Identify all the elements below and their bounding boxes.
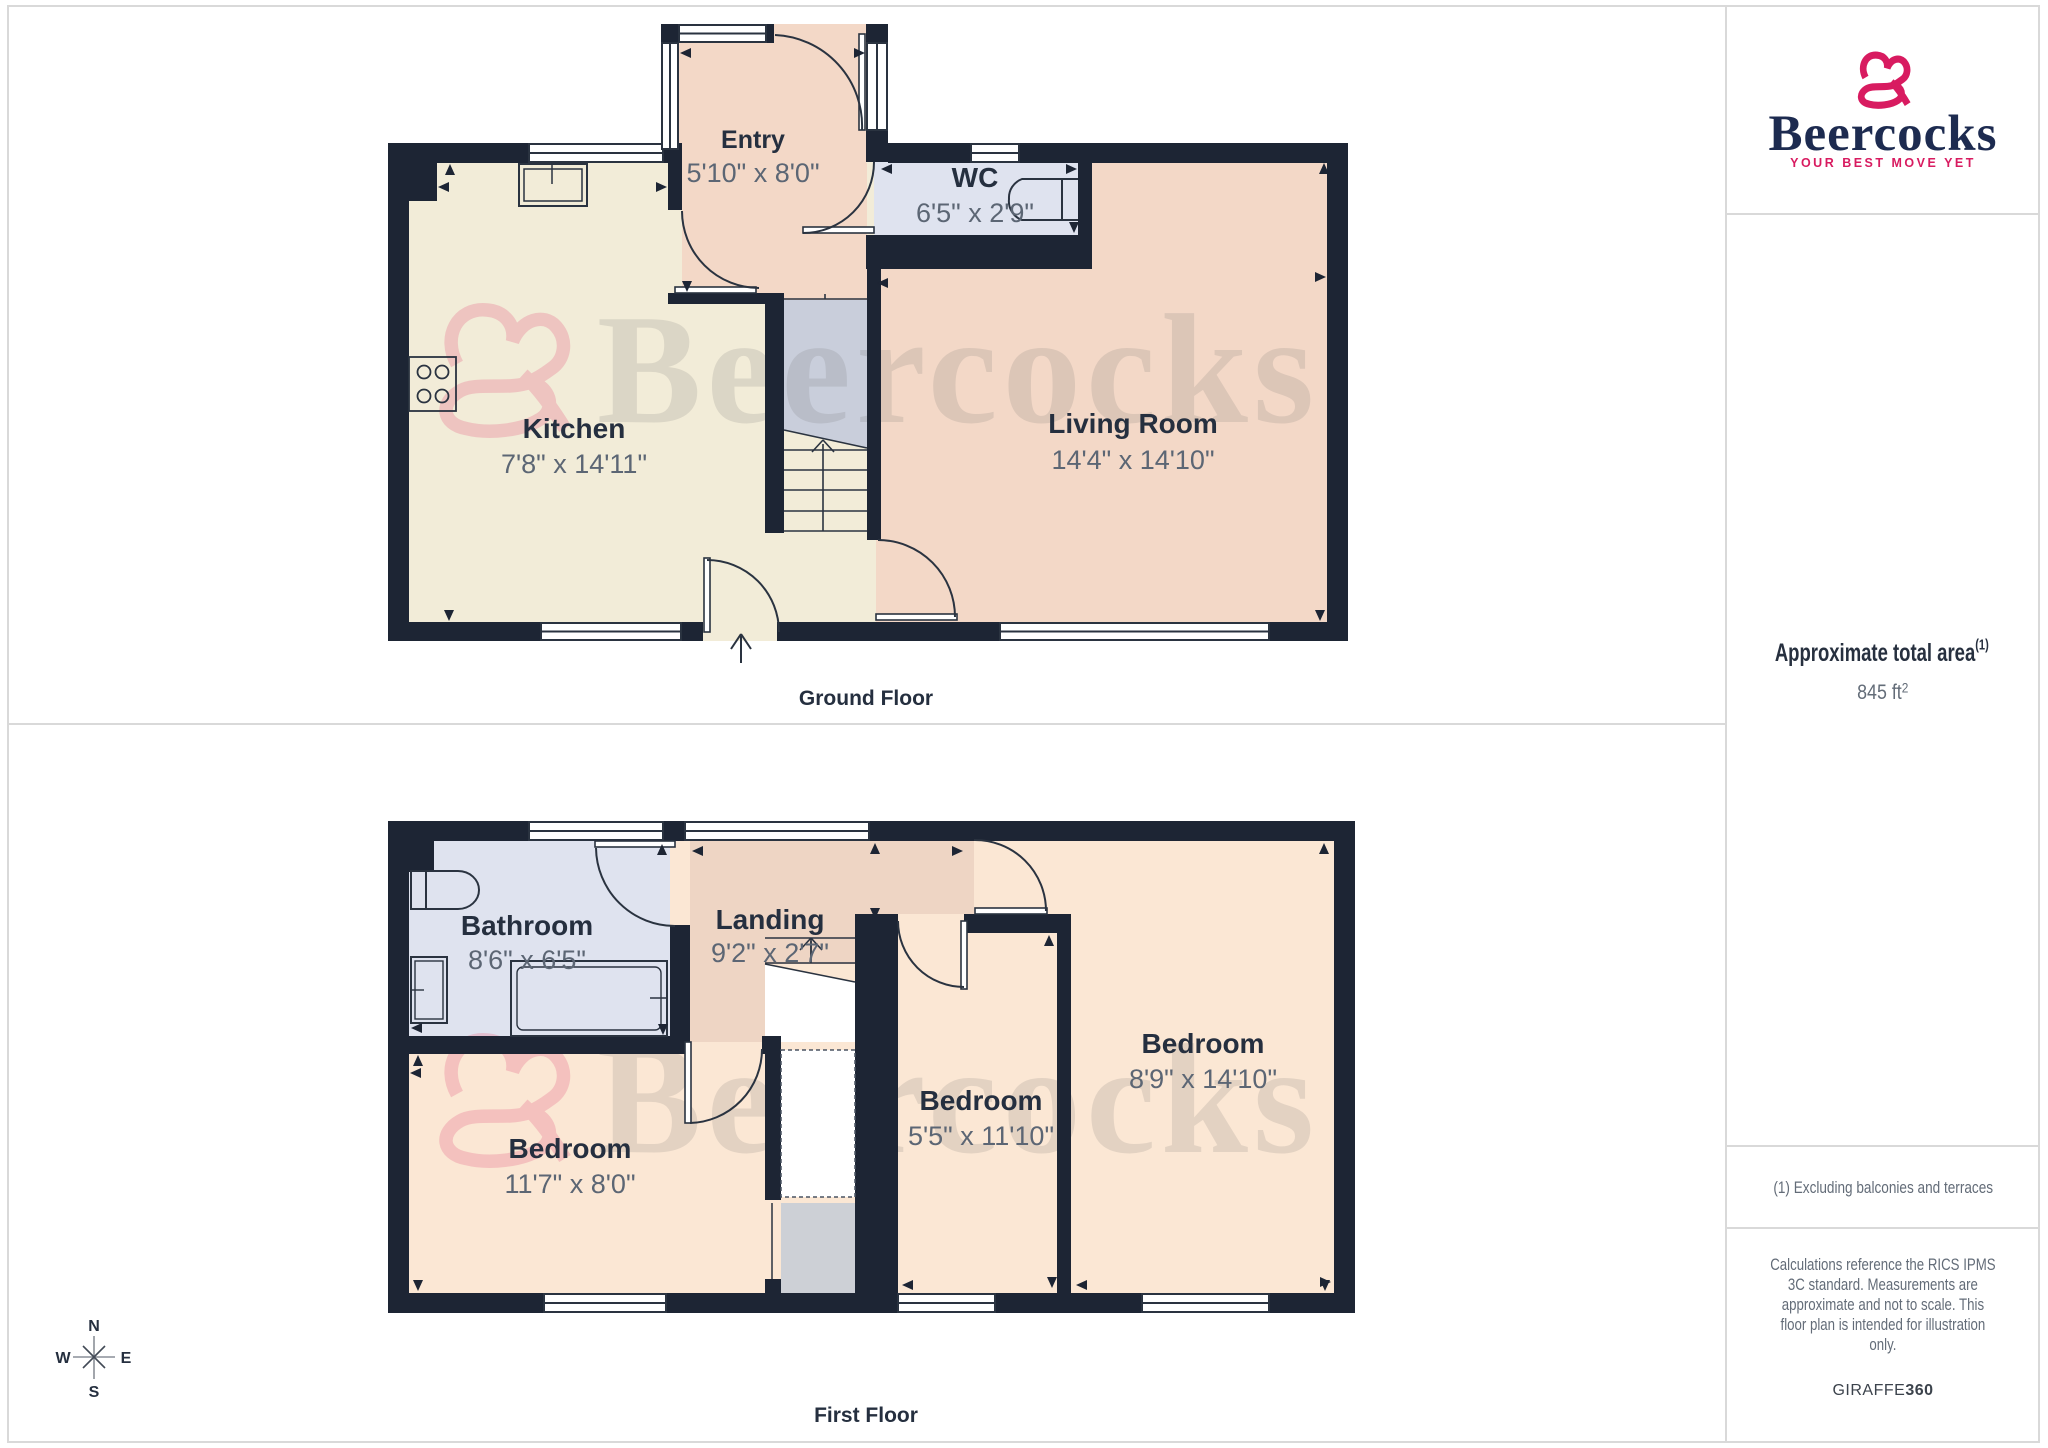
svg-text:only.: only. bbox=[1869, 1336, 1896, 1355]
svg-text:Bedroom: Bedroom bbox=[920, 1085, 1043, 1116]
svg-text:8'9" x 14'10": 8'9" x 14'10" bbox=[1129, 1064, 1277, 1094]
svg-text:Bedroom: Bedroom bbox=[509, 1133, 632, 1164]
svg-text:YOUR BEST MOVE YET: YOUR BEST MOVE YET bbox=[1790, 156, 1976, 170]
svg-text:N: N bbox=[88, 1318, 100, 1335]
svg-text:W: W bbox=[55, 1350, 71, 1367]
svg-text:First Floor: First Floor bbox=[814, 1404, 918, 1427]
svg-text:5'5" x 11'10": 5'5" x 11'10" bbox=[908, 1121, 1054, 1151]
svg-text:approximate and not to scale.: approximate and not to scale. This bbox=[1782, 1296, 1985, 1315]
svg-text:Entry: Entry bbox=[721, 126, 785, 154]
svg-text:Bathroom: Bathroom bbox=[461, 910, 593, 941]
svg-text:Bedroom: Bedroom bbox=[1142, 1028, 1265, 1059]
svg-text:Calculations reference the RIC: Calculations reference the RICS IPMS bbox=[1770, 1256, 1995, 1275]
svg-text:floor plan is intended for ill: floor plan is intended for illustration bbox=[1781, 1316, 1986, 1335]
svg-text:Kitchen: Kitchen bbox=[523, 413, 626, 444]
svg-text:Living Room: Living Room bbox=[1048, 408, 1218, 439]
svg-text:Ground Floor: Ground Floor bbox=[799, 687, 933, 710]
svg-text:Landing: Landing bbox=[716, 904, 825, 935]
svg-text:Beercocks: Beercocks bbox=[1769, 106, 1998, 162]
svg-text:5'10" x 8'0": 5'10" x 8'0" bbox=[686, 158, 819, 188]
svg-text:7'8" x 14'11": 7'8" x 14'11" bbox=[501, 449, 647, 479]
svg-text:(1) Excluding balconies and te: (1) Excluding balconies and terraces bbox=[1773, 1179, 1993, 1198]
svg-text:11'7" x 8'0": 11'7" x 8'0" bbox=[504, 1169, 635, 1199]
svg-text:E: E bbox=[121, 1350, 132, 1367]
svg-text:Approximate total area(1): Approximate total area(1) bbox=[1775, 636, 1989, 666]
svg-text:14'4" x 14'10": 14'4" x 14'10" bbox=[1051, 445, 1214, 475]
svg-text:GIRAFFE360: GIRAFFE360 bbox=[1832, 1382, 1933, 1399]
svg-text:6'5" x 2'9": 6'5" x 2'9" bbox=[916, 198, 1034, 228]
svg-text:3C standard. Measurements are: 3C standard. Measurements are bbox=[1788, 1276, 1978, 1295]
svg-text:WC: WC bbox=[952, 162, 999, 193]
svg-text:845 ft2: 845 ft2 bbox=[1857, 679, 1908, 704]
svg-text:8'6" x 6'5": 8'6" x 6'5" bbox=[468, 945, 586, 975]
svg-text:S: S bbox=[89, 1384, 100, 1401]
svg-text:9'2" x 2'7": 9'2" x 2'7" bbox=[711, 938, 829, 968]
